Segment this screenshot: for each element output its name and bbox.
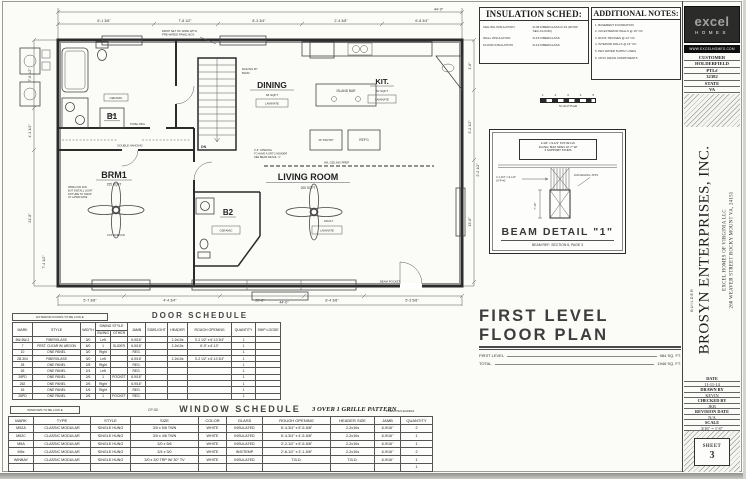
cell: T.B.D. bbox=[263, 456, 331, 464]
sidebar-divider bbox=[682, 1, 683, 472]
scale-bar-numbers: 12345 bbox=[542, 93, 594, 97]
insulation-value: R-15 FIBERGLASS bbox=[530, 34, 588, 41]
cell: CLASSIC MODULAR bbox=[34, 440, 91, 448]
dimension-label: 1'-6" bbox=[468, 62, 472, 70]
sink-icon bbox=[76, 116, 85, 125]
room-label-b1: B1 bbox=[107, 112, 118, 121]
cell: CLASSIC MODULAR bbox=[34, 432, 91, 440]
fan-wiring-note: AT LATER DATE bbox=[68, 195, 88, 199]
leader-line bbox=[507, 356, 657, 357]
cell: M52C bbox=[9, 432, 34, 440]
cell: 3/0 x 3/0 TRP W/ 30° TV bbox=[131, 456, 199, 464]
drawing-sheet: 44'-0" 6'-1 3/8" 7'-8 1/2" 8'-3 3/4" 2'-… bbox=[0, 0, 746, 479]
additional-notes: ADDITIONAL NOTES: 1. BASEMENT FOUNDATION… bbox=[591, 7, 681, 80]
column-header: STYLE bbox=[33, 323, 81, 337]
total-sqft-row: TOTAL 1946 SQ. FT. bbox=[479, 358, 681, 366]
cell: 26PD bbox=[13, 393, 33, 399]
builder-address: 260 WEAVER STREET ROCKY MOUNT VA, 24151 bbox=[730, 192, 735, 309]
railing-note: BLDR. bbox=[242, 71, 250, 75]
cell: REG. bbox=[128, 393, 146, 399]
dimension-label: 6'-8 3/4" bbox=[415, 19, 429, 23]
cell: 6'-4-3/4" x 5'-5-5/8" bbox=[263, 425, 331, 433]
hatch-divider bbox=[684, 94, 740, 127]
wiring-note: PRE-WIRED PANEL BOX bbox=[162, 33, 194, 37]
builder-label: BUILDER bbox=[690, 288, 694, 311]
dimension-label: 7'-8 1/2" bbox=[178, 19, 192, 23]
room-label-kit: KIT. bbox=[375, 77, 388, 86]
room-label-b2: B2 bbox=[223, 208, 234, 217]
future-fan-label: FUTURE FAN bbox=[107, 233, 125, 237]
cell: 1 bbox=[401, 432, 433, 440]
insulation-item: CEILING INSULATION bbox=[480, 23, 530, 34]
bath-b2-fixtures: CERAMIC bbox=[196, 198, 240, 258]
window-schedule-row: M52A CLASSIC MODULAR SINGLE HUNG 3/0 x 5… bbox=[9, 425, 433, 433]
door-schedule-row: 26PD ONE PANEL 2/6 1 POCKET REG. 1 bbox=[13, 393, 281, 399]
column-header: HEADER SIZE bbox=[331, 417, 375, 425]
scale-bar-strip bbox=[540, 98, 596, 103]
note-item: 6. CPVC DRAIN COMPONENTS bbox=[592, 53, 680, 60]
window-schedule-title: WINDOW SCHEDULE bbox=[170, 404, 310, 414]
dimension-label: 6'-1 3/8" bbox=[97, 19, 111, 23]
toilet-icon bbox=[98, 50, 107, 61]
range-icon bbox=[310, 42, 334, 58]
sheet-number-box: SHEET 3 bbox=[694, 438, 730, 466]
dimension-label: 7'-4 1/2" bbox=[42, 255, 46, 269]
scale-bar-label: SCALE BAR bbox=[537, 104, 599, 108]
floor-finish-label: LAMINATE bbox=[320, 229, 334, 233]
column-header: SIDELIGHT bbox=[146, 323, 168, 337]
column-header: SHIP LOOSE bbox=[256, 323, 281, 337]
windows bbox=[92, 36, 465, 300]
column-header: TYPE bbox=[34, 417, 91, 425]
tub-inner bbox=[65, 51, 85, 89]
beam-pocket-label: BEAM POCKET bbox=[380, 280, 400, 284]
window-schedule-row: M5x CLASSIC MODULAR SINGLE HUNG 3/4 x 3/… bbox=[9, 448, 433, 456]
window-schedule-table: MARK TYPE STYLE SIZE COLOR GLASS ROUGH O… bbox=[8, 416, 433, 472]
cell: M52A bbox=[9, 425, 34, 433]
scale-bar: 12345 SCALE BAR bbox=[537, 93, 599, 120]
opening-note: SEE BEAM DETAIL "1" bbox=[254, 155, 281, 159]
cell: INS/TEMP bbox=[227, 448, 263, 456]
column-header: MARK bbox=[9, 417, 34, 425]
dimension-label: 2'-2 1/2" bbox=[476, 163, 480, 177]
room-sqft: 96 SQFT bbox=[266, 93, 278, 97]
vanity bbox=[62, 98, 88, 128]
dimension-label: 3'-2 1/2" bbox=[468, 120, 472, 134]
dimension-label: 7'-6 1/2" bbox=[28, 68, 32, 82]
room-sqft: 60 SQFT bbox=[376, 89, 388, 93]
toilet-icon bbox=[200, 239, 208, 249]
beam-right-label: 2x8 CEILING JSTS bbox=[574, 173, 598, 177]
cell: CLASSIC MODULAR bbox=[34, 448, 91, 456]
cell bbox=[227, 463, 263, 471]
ceiling-prep-note: W/L CEILING PREP bbox=[324, 161, 349, 165]
bath-b1-fixtures: LINEN CERAMIC TOWEL RING bbox=[62, 42, 145, 128]
cell: 1 bbox=[232, 393, 256, 399]
dimension-label: 4'-4 3/4" bbox=[163, 299, 177, 303]
ceiling-fan-icon bbox=[88, 182, 342, 240]
room-labels: B1 BRM1 155 SQFT DINING 96 SQFT LAMINATE… bbox=[96, 77, 396, 234]
dimension-label: 44'-0" bbox=[434, 8, 444, 12]
cell: 1 bbox=[401, 456, 433, 464]
corner-pantry bbox=[436, 56, 462, 90]
cell: WHITE bbox=[199, 432, 227, 440]
column-header: SIZE bbox=[131, 417, 199, 425]
fan-wiring-note: BUT INSTALL LIGHT bbox=[68, 188, 93, 192]
column-header: QUANTITY bbox=[232, 323, 256, 337]
note-item: 5. PEX WATER SUPPLY LINES bbox=[592, 46, 680, 53]
window-schedule-note: WINDOWS TO BE LOW-E bbox=[10, 406, 80, 414]
cell: 1 bbox=[96, 393, 111, 399]
page-edge-shadow bbox=[0, 473, 746, 479]
room-sqft: 155 SQFT bbox=[107, 183, 122, 187]
door-schedule-table: MARK STYLE WIDTH SWING STYLE JAMB SIDELI… bbox=[12, 322, 281, 400]
ceramic-label: CERAMIC bbox=[110, 96, 123, 100]
builder-name: BROSYN ENTERPRISES, INC. bbox=[697, 146, 714, 355]
cell: 2 bbox=[401, 448, 433, 456]
window-schedule-row: 1 bbox=[9, 463, 433, 471]
stairs-down-label: DN bbox=[201, 145, 207, 149]
sheet-number: 3 bbox=[710, 450, 715, 461]
egress-note: # DENOTES EGRESS bbox=[386, 409, 414, 413]
insulation-value: R-38 FIBERGLASS R-19 (ROOF SEC-FLOOR) bbox=[530, 23, 588, 34]
cell: 2-2x10s bbox=[331, 432, 375, 440]
beam-detail-drawing: 7'-10" 4 1-3/4" x 9-1/4" SYP #2 2x8 CEIL… bbox=[494, 162, 621, 224]
plan-annotations: DROP SET OF WIRE WITH PRE-WIRED PANEL BO… bbox=[62, 29, 400, 284]
cell: 2 bbox=[401, 425, 433, 433]
logo-subtext: HOMES bbox=[695, 30, 729, 35]
opening-note: TO HAVE A GRT-2 HEADER bbox=[254, 152, 287, 156]
customer-info: CUSTOMER HOLDERFIELD PTL# 32382 STATE VA bbox=[684, 55, 740, 93]
pantry-label: 30" PANTRY bbox=[318, 138, 334, 142]
floor-finish-label: LAMINATE bbox=[375, 98, 389, 102]
cell: 6-9/16" bbox=[375, 448, 401, 456]
column-header: JAMB bbox=[128, 323, 146, 337]
kitchen-fixtures: ISLAND BAR 30" PANTRY REF'G bbox=[302, 42, 462, 150]
dimension-label: 2'-4 3/8" bbox=[334, 19, 348, 23]
cell: SINGLE HUNG bbox=[91, 425, 131, 433]
cell: ONE PANEL bbox=[33, 393, 81, 399]
cell: WHITE bbox=[199, 440, 227, 448]
window-code: CP-50 bbox=[148, 408, 158, 412]
room-label-brm1: BRM1 bbox=[101, 170, 127, 180]
cell: M5x bbox=[9, 448, 34, 456]
cell bbox=[34, 463, 91, 471]
sink-icon bbox=[66, 103, 75, 112]
sheet-label: SHEET bbox=[703, 444, 722, 449]
cell: 3/0 x 4/6 TWN bbox=[131, 432, 199, 440]
sink-icon bbox=[201, 202, 210, 211]
room-label-living: LIVING ROOM bbox=[278, 172, 339, 182]
fridge-label: REF'G bbox=[359, 138, 369, 142]
cell: 6-9/16" bbox=[375, 425, 401, 433]
cell: WHITE bbox=[199, 456, 227, 464]
notes-title: ADDITIONAL NOTES: bbox=[592, 8, 680, 20]
cell: 3/0 x 5/6 bbox=[131, 440, 199, 448]
beam-detail-note: 1-3/4" x 9-1/4" SYP #2 LVL FLUSH, MAX SP… bbox=[519, 139, 597, 160]
beam-detail-ref: BEAM REF: SECTION 6, PAGE 3 bbox=[501, 240, 614, 247]
state-value: VA bbox=[684, 87, 740, 93]
floor-plan: 44'-0" 6'-1 3/8" 7'-8 1/2" 8'-3 3/4" 2'-… bbox=[4, 0, 482, 308]
cell: T.B.D. bbox=[331, 456, 375, 464]
dimension-label: 8'-4 3/8" bbox=[325, 299, 339, 303]
window-schedule-row: M52C CLASSIC MODULAR SINGLE HUNG 3/0 x 4… bbox=[9, 432, 433, 440]
cell bbox=[199, 463, 227, 471]
cell bbox=[91, 463, 131, 471]
walls bbox=[58, 40, 462, 289]
insulation-table: CEILING INSULATION R-38 FIBERGLASS R-19 … bbox=[480, 23, 588, 49]
cell bbox=[331, 463, 375, 471]
opening-note: 3'-6" OPENING bbox=[254, 148, 272, 152]
plan-title-block: FIRST LEVEL FLOOR PLAN FIRST LEVEL 984 S… bbox=[479, 307, 681, 366]
note-item: 3. ROOF TRUSSES @ 24" OC bbox=[592, 33, 680, 40]
cell: 6-9/16" bbox=[375, 440, 401, 448]
fan-wiring-note: FIXTURE TO SWAP bbox=[68, 192, 92, 196]
column-header: WIDTH bbox=[81, 323, 96, 337]
vanity bbox=[196, 198, 214, 214]
floor-finish-label: LAMINATE bbox=[265, 102, 279, 106]
column-header: QUANTITY bbox=[401, 417, 433, 425]
cell: 6-9/16" bbox=[375, 456, 401, 464]
cell: WHITE bbox=[199, 448, 227, 456]
fan-wiring-note: WIRE FOR FAN bbox=[68, 185, 87, 189]
insulation-row: WALL INSULATION R-15 FIBERGLASS bbox=[480, 34, 588, 41]
cell: WHITE bbox=[199, 425, 227, 433]
cell: CLASSIC MODULAR bbox=[34, 425, 91, 433]
stairs: DN RAILING BY BLDR. bbox=[198, 58, 258, 150]
towel-ring-label: TOWEL RING bbox=[130, 123, 145, 126]
dimension-label: 13'-6" bbox=[468, 217, 472, 227]
cell: 6-9/16" bbox=[375, 432, 401, 440]
column-header: MARK bbox=[13, 323, 33, 337]
window-schedule-row: WINBAY CLASSIC MODULAR SINGLE HUNG 3/0 x… bbox=[9, 456, 433, 464]
cell: SINGLE HUNG bbox=[91, 448, 131, 456]
insulation-value: R-19 FIBERGLASS bbox=[530, 41, 588, 48]
cell: 3/4 x 3/0 bbox=[131, 448, 199, 456]
cell: WINBAY bbox=[9, 456, 34, 464]
cell: POCKET bbox=[111, 393, 128, 399]
dimension-label: 20'-8" bbox=[255, 299, 265, 303]
cell bbox=[256, 393, 281, 399]
insulation-title: INSULATION SCHED: bbox=[480, 8, 588, 21]
cell: 3/0 x 5/6 TWN bbox=[131, 425, 199, 433]
tub-icon bbox=[62, 48, 88, 92]
page-title: FIRST LEVEL FLOOR PLAN bbox=[479, 307, 681, 348]
excel-homes-logo: excel HOMES bbox=[684, 6, 740, 43]
column-header: JAMB bbox=[375, 417, 401, 425]
dimension-label: 21'-8" bbox=[28, 213, 32, 223]
column-header-group: SWING STYLE bbox=[96, 323, 128, 331]
cell bbox=[168, 393, 188, 399]
cell bbox=[131, 463, 199, 471]
island bbox=[316, 84, 376, 106]
cell: 6'-4-3/4" x 4'-5-5/8" bbox=[263, 432, 331, 440]
note-item: 4. INTERIOR WALLS @ 16" OC bbox=[592, 40, 680, 47]
note-item: 1. BASEMENT FOUNDATION bbox=[592, 20, 680, 27]
cell: 2-2x10s bbox=[331, 425, 375, 433]
column-header: STYLE bbox=[91, 417, 131, 425]
insulation-row: CEILING INSULATION R-38 FIBERGLASS R-19 … bbox=[480, 23, 588, 34]
beam-detail-title: BEAM DETAIL "1" bbox=[489, 226, 626, 238]
double-hanging-label: DOUBLE HANGING bbox=[117, 144, 142, 148]
logo-text: excel bbox=[694, 14, 729, 29]
room-label-dining: DINING bbox=[257, 80, 287, 90]
cell bbox=[375, 463, 401, 471]
cell: 3'-2-1/2" x 5'-5-5/8" bbox=[263, 440, 331, 448]
cell: SINGLE HUNG bbox=[91, 456, 131, 464]
leader-line bbox=[495, 364, 655, 365]
cell: INSULATED bbox=[227, 440, 263, 448]
cell: 2'-6-1/2" x 3'-1-5/8" bbox=[263, 448, 331, 456]
cell bbox=[9, 463, 34, 471]
ceramic-label: CERAMIC bbox=[220, 229, 233, 233]
fan-light-label: FAN/LT bbox=[324, 219, 334, 223]
dimension-label: 5'-7 3/8" bbox=[83, 299, 97, 303]
insulation-row: FLOOR INSULATION R-19 FIBERGLASS bbox=[480, 41, 588, 48]
column-header: HEADER bbox=[168, 323, 188, 337]
cell: SINGLE HUNG bbox=[91, 440, 131, 448]
column-header: ROUGH OPENING bbox=[263, 417, 331, 425]
cell: INSULATED bbox=[227, 432, 263, 440]
door-schedule-title: DOOR SCHEDULE bbox=[120, 311, 280, 320]
cell: 2-2x10s bbox=[331, 440, 375, 448]
kitchen-sink bbox=[348, 43, 372, 55]
cell: 2/6 bbox=[81, 393, 96, 399]
insulation-item: WALL INSULATION bbox=[480, 34, 530, 41]
cell bbox=[188, 393, 232, 399]
cell: 1 bbox=[401, 440, 433, 448]
dimension-label: 4'-1 1/4" bbox=[28, 124, 32, 138]
cell: INSULATED bbox=[227, 425, 263, 433]
first-level-sqft-row: FIRST LEVEL 984 SQ. FT. bbox=[479, 350, 681, 358]
column-header: COLOR bbox=[199, 417, 227, 425]
beam-dim-label: 7'-10" bbox=[533, 202, 537, 209]
cell: SINGLE HUNG bbox=[91, 432, 131, 440]
window-schedule-row: M5A CLASSIC MODULAR SINGLE HUNG 3/0 x 5/… bbox=[9, 440, 433, 448]
note-item: 2. 2x6 EXTERIOR WALLS @ 16" OC bbox=[592, 27, 680, 34]
insulation-item: FLOOR INSULATION bbox=[480, 41, 530, 48]
cell bbox=[146, 393, 168, 399]
title-block-info: DATE 11-11-14 DRAWN BY KEVIN CHECKED BY … bbox=[684, 376, 740, 431]
dimension-label: 44'-0" bbox=[279, 301, 289, 305]
column-header: ROUGH OPENING bbox=[188, 323, 232, 337]
website-bar: WWW.EXCELHOMES.COM bbox=[684, 45, 740, 53]
laundry-fixtures bbox=[20, 48, 50, 106]
builder-address: EXCEL HOMES OF VIRGINIA LLC bbox=[723, 209, 728, 291]
total-value: 1946 SQ. FT. bbox=[657, 361, 681, 366]
cell: INSULATED bbox=[227, 456, 263, 464]
dimension-label: 8'-3 3/4" bbox=[252, 19, 266, 23]
first-level-label: FIRST LEVEL bbox=[479, 353, 504, 358]
total-label: TOTAL bbox=[479, 361, 492, 366]
cell: M5A bbox=[9, 440, 34, 448]
cell: CLASSIC MODULAR bbox=[34, 456, 91, 464]
column-header: GLASS bbox=[227, 417, 263, 425]
dimension-label: 5'-3 5/8" bbox=[405, 299, 419, 303]
toilet-tank-icon bbox=[198, 252, 210, 258]
cell: 2-2x10s bbox=[331, 448, 375, 456]
counter bbox=[302, 42, 432, 56]
room-sqft: 205 SQFT bbox=[301, 186, 316, 190]
island-bar-label: ISLAND BAR bbox=[337, 89, 357, 93]
cell: 1 bbox=[401, 463, 433, 471]
first-level-value: 984 SQ. FT. bbox=[660, 353, 681, 358]
scale-value: 3/16" = 1'-0" bbox=[684, 426, 740, 432]
beam-left-label: SYP #2 bbox=[496, 179, 506, 183]
door-schedule-note: EXTERIOR DOORS TO BE LOW-E bbox=[12, 313, 108, 321]
cell bbox=[263, 463, 331, 471]
insulation-schedule: INSULATION SCHED: CEILING INSULATION R-3… bbox=[479, 7, 589, 64]
